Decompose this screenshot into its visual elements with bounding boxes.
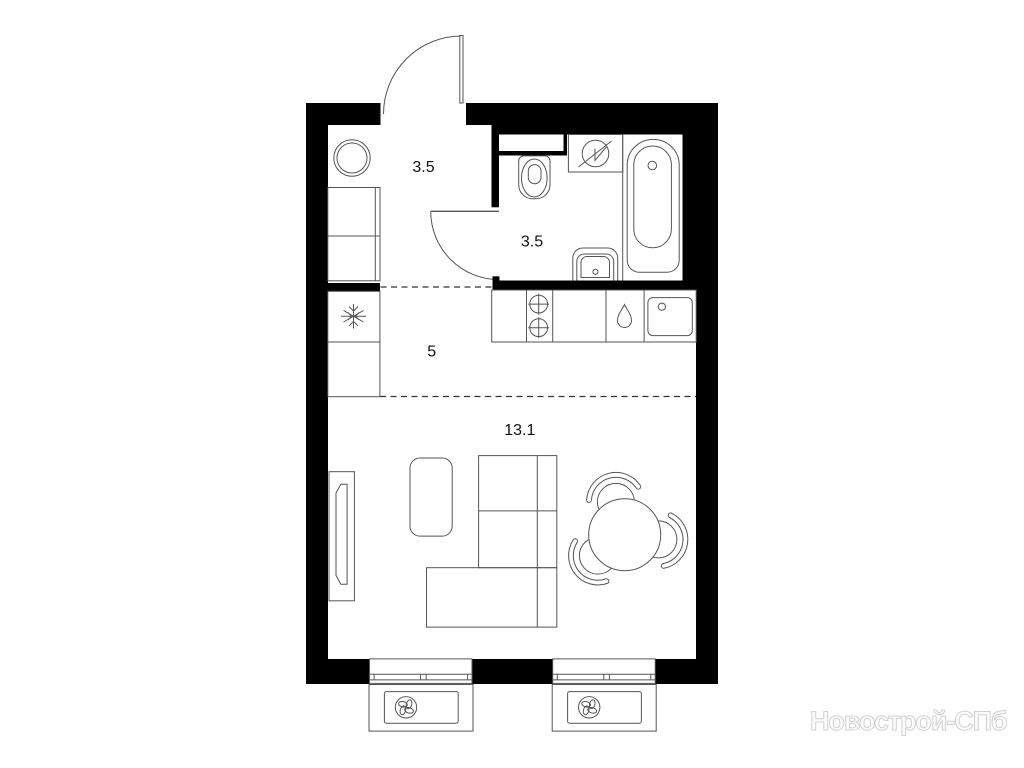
svg-text:13.1: 13.1 [504, 422, 535, 439]
svg-text:3.5: 3.5 [412, 159, 434, 176]
svg-text:5: 5 [427, 343, 436, 360]
svg-text:3.5: 3.5 [521, 234, 543, 251]
svg-text:Новострой-СПб: Новострой-СПб [810, 706, 1007, 736]
